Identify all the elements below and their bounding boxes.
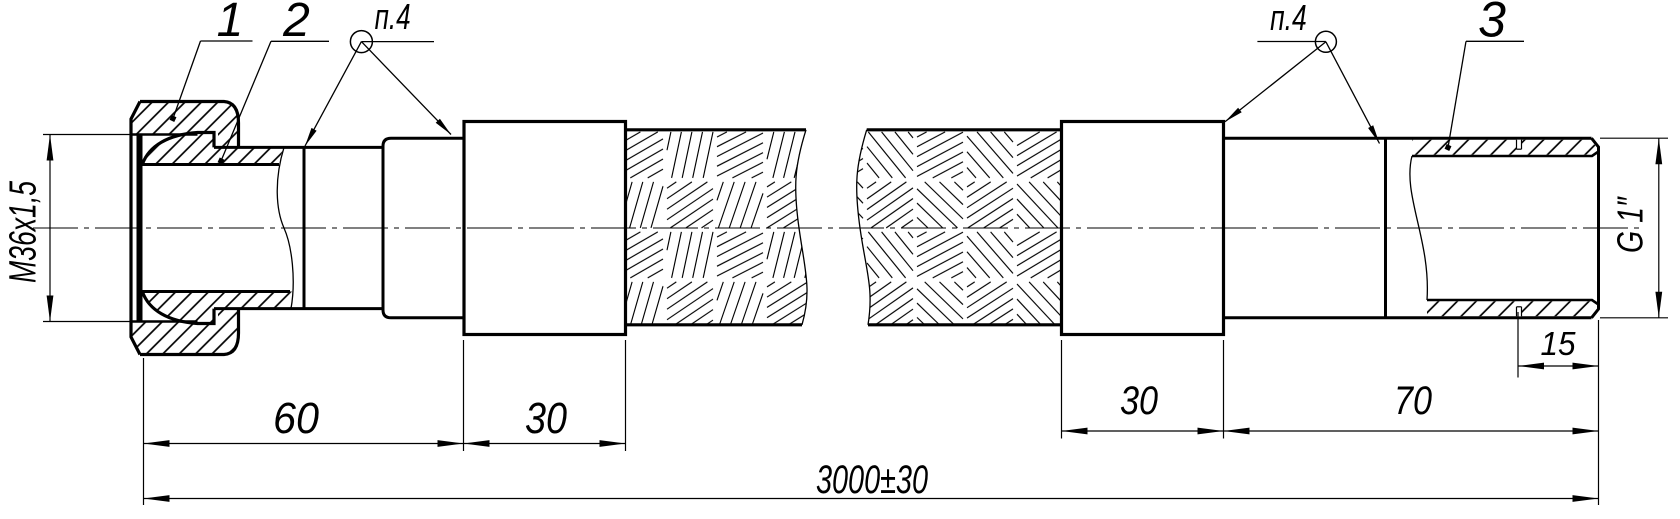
svg-text:п.4: п.4 bbox=[375, 0, 411, 37]
svg-text:п.4: п.4 bbox=[1270, 0, 1307, 38]
svg-text:15: 15 bbox=[1541, 325, 1577, 362]
svg-text:30: 30 bbox=[525, 394, 567, 443]
svg-text:G 1″: G 1″ bbox=[1610, 196, 1651, 253]
svg-text:3000±30: 3000±30 bbox=[816, 458, 928, 502]
svg-text:30: 30 bbox=[1120, 379, 1158, 423]
svg-text:3: 3 bbox=[1478, 0, 1506, 48]
svg-text:60: 60 bbox=[273, 394, 319, 443]
svg-text:2: 2 bbox=[282, 0, 310, 47]
svg-text:70: 70 bbox=[1394, 379, 1432, 423]
svg-text:M36x1,5: M36x1,5 bbox=[3, 180, 45, 283]
svg-text:1: 1 bbox=[217, 0, 244, 47]
